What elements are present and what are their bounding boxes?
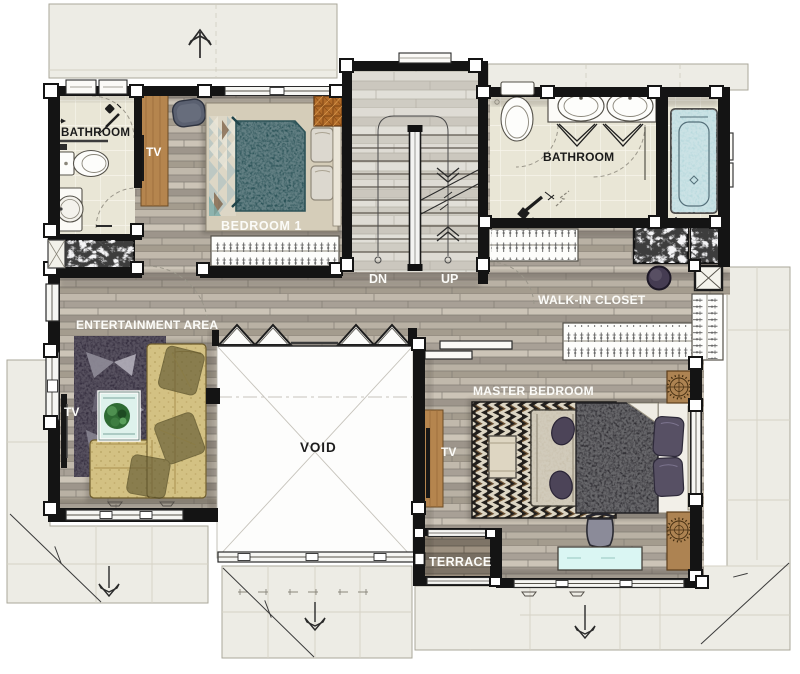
svg-text:TV: TV xyxy=(64,405,79,419)
svg-text:UP: UP xyxy=(441,272,458,286)
svg-text:WALK-IN CLOSET: WALK-IN CLOSET xyxy=(538,293,646,307)
svg-text:BATHROOM: BATHROOM xyxy=(61,127,130,139)
svg-text:ENTERTAINMENT AREA: ENTERTAINMENT AREA xyxy=(76,318,218,332)
svg-text:TERRACE: TERRACE xyxy=(429,555,492,569)
svg-text:TV: TV xyxy=(441,445,456,459)
svg-text:VOID: VOID xyxy=(300,440,337,455)
svg-text:BATHROOM: BATHROOM xyxy=(543,150,614,164)
svg-text:DN: DN xyxy=(369,272,387,286)
svg-text:BEDROOM 1: BEDROOM 1 xyxy=(221,219,302,233)
svg-text:TV: TV xyxy=(146,145,161,159)
svg-text:MASTER BEDROOM: MASTER BEDROOM xyxy=(473,384,594,398)
